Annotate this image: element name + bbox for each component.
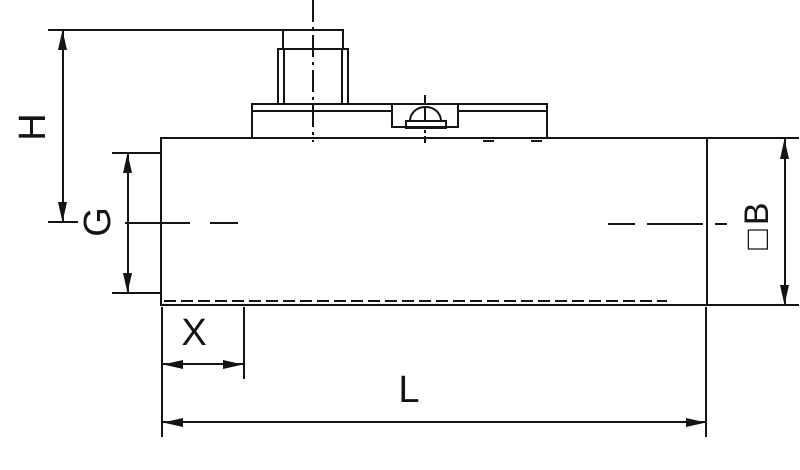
arrowhead-l-right-icon <box>686 418 706 427</box>
mounting-plate-outline <box>251 103 548 139</box>
screw-pocket-right-wall <box>457 105 459 128</box>
hidden-edge-top-dash <box>483 140 494 142</box>
connector-inner-line-right <box>341 50 343 103</box>
extension-line-g-bottom <box>112 292 160 294</box>
dimension-label-x: X <box>181 314 206 352</box>
arrowhead-g-down-icon <box>123 273 132 293</box>
arrowhead-x-left-icon <box>163 360 183 369</box>
dimension-label-b: □B <box>740 198 774 249</box>
center-axis-screw-seg <box>424 136 426 143</box>
screw-pocket-left-wall <box>391 105 393 128</box>
arrowhead-b-down-icon <box>780 285 789 305</box>
dimension-line-l <box>162 421 707 423</box>
extension-line-h-top <box>48 29 283 31</box>
extension-line-x-right <box>243 307 245 379</box>
dimension-line-h <box>62 30 64 222</box>
extension-line-l-right <box>705 307 707 437</box>
center-axis-left-seg <box>210 222 238 224</box>
dimension-label-g: G <box>79 207 117 237</box>
center-axis-screw-seg <box>424 130 426 133</box>
arrowhead-h-down-icon <box>58 202 67 222</box>
hidden-edge-bottom <box>164 300 667 302</box>
arrowhead-b-up-icon <box>780 139 789 159</box>
dimension-label-l: L <box>398 371 419 409</box>
extension-line-left-vertical <box>161 307 163 437</box>
dimension-line-g <box>127 153 129 293</box>
center-axis-right-seg <box>608 223 635 225</box>
dimension-line-b <box>784 138 786 305</box>
main-body-outline <box>160 137 708 306</box>
connector-inner-line-left <box>283 50 285 103</box>
arrowhead-g-up-icon <box>123 153 132 173</box>
center-axis-connector <box>312 0 314 142</box>
center-axis-screw-seg <box>424 95 426 103</box>
arrowhead-l-left-icon <box>163 418 183 427</box>
center-axis-left-seg <box>125 222 190 224</box>
center-axis-right-seg <box>647 223 703 225</box>
mounting-plate-inner-line-left <box>253 110 391 112</box>
screw-head-slot <box>424 107 426 120</box>
mounting-plate-inner-line-right <box>459 110 546 112</box>
technical-drawing-canvas: H G □B X L <box>0 0 800 470</box>
arrowhead-h-up-icon <box>58 30 67 50</box>
extension-line-g-top <box>112 152 160 154</box>
arrowhead-x-right-icon <box>223 360 243 369</box>
dimension-label-h: H <box>14 113 52 140</box>
hidden-edge-top-dash <box>531 140 542 142</box>
center-axis-right-seg <box>715 223 727 225</box>
